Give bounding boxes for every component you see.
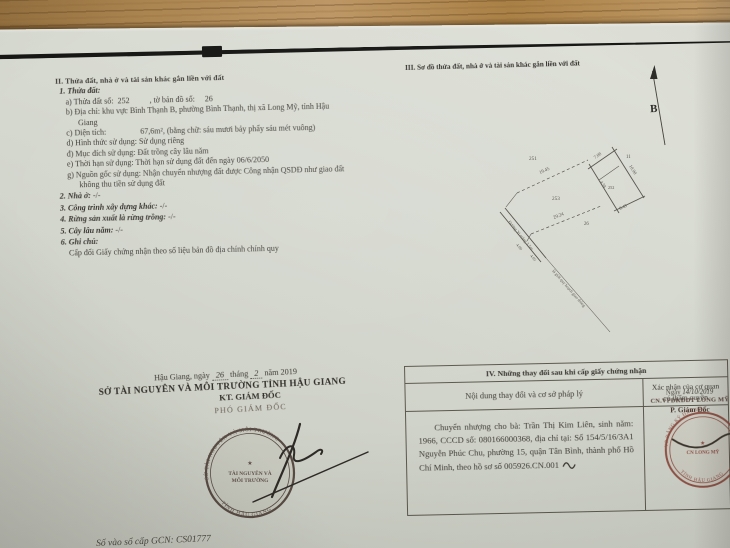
north-arrow-icon: B (650, 65, 665, 145)
handwritten-mark (562, 461, 576, 470)
dim-upper-line: 19.45 (539, 166, 551, 175)
seal-center-line1: TÀI NGUYÊN VÀ (228, 469, 271, 477)
dim-road2: 4.05 (529, 253, 537, 262)
area-value: 67,6m², (140, 126, 165, 136)
approval-date: 14/10/2019 (682, 389, 713, 397)
transfer-entry: Chuyển nhượng cho bà: Trần Thị Kim Liên,… (406, 407, 646, 515)
changes-after-issue-table: IV. Những thay đổi sau khi cấp giấy chứn… (404, 359, 730, 516)
neighbor-253: 253 (552, 196, 560, 202)
neighbor-26: 26 (584, 222, 589, 227)
dim-top: 7.08 (593, 151, 603, 160)
seal-center-line2: MÔI TRƯỜNG (232, 476, 269, 484)
dim-bottom: 8.43 (618, 203, 628, 211)
dim-road1: 4.00 (515, 242, 523, 251)
tie-line-upper (517, 160, 588, 193)
photographed-land-certificate: II. Thửa đất, nhà ở và tài sản khác gắn … (0, 0, 730, 548)
parcel-sketch-diagram: B 7.08 10.90 8.43 4.58 252 11 (455, 55, 730, 347)
boundary-label: lộ giới quy hoạch giao thông (551, 268, 587, 308)
tie-line-lower (531, 206, 601, 234)
approval-seal-center: CN LONG MỸ (686, 449, 719, 456)
dim-lower-line: 29.24 (553, 212, 565, 221)
parcel-number-label: 252 (608, 185, 614, 190)
seal-star: ★ (247, 460, 252, 467)
parcel-number-value: 252 (117, 96, 129, 105)
dim-left: 4.58 (599, 180, 607, 189)
handwritten-day: 26 (212, 370, 229, 381)
map-sheet-value: 26 (205, 94, 213, 103)
neighbor-11: 11 (626, 155, 631, 160)
dim-right: 10.90 (628, 164, 638, 176)
column-header-changes: Nội dung thay đổi và cơ sở pháp lý (405, 379, 644, 411)
north-label: B (650, 103, 659, 115)
handwritten-month: 2 (250, 369, 263, 380)
approval-seal: VP ĐĂNG KÝ ĐẤT ĐAI TỈNH HẬU GIANG ★ CN L… (644, 406, 730, 526)
neighbor-251: 251 (529, 156, 537, 162)
section-land-parcel: II. Thửa đất, nhà ở và tài sản khác gắn … (46, 69, 402, 259)
